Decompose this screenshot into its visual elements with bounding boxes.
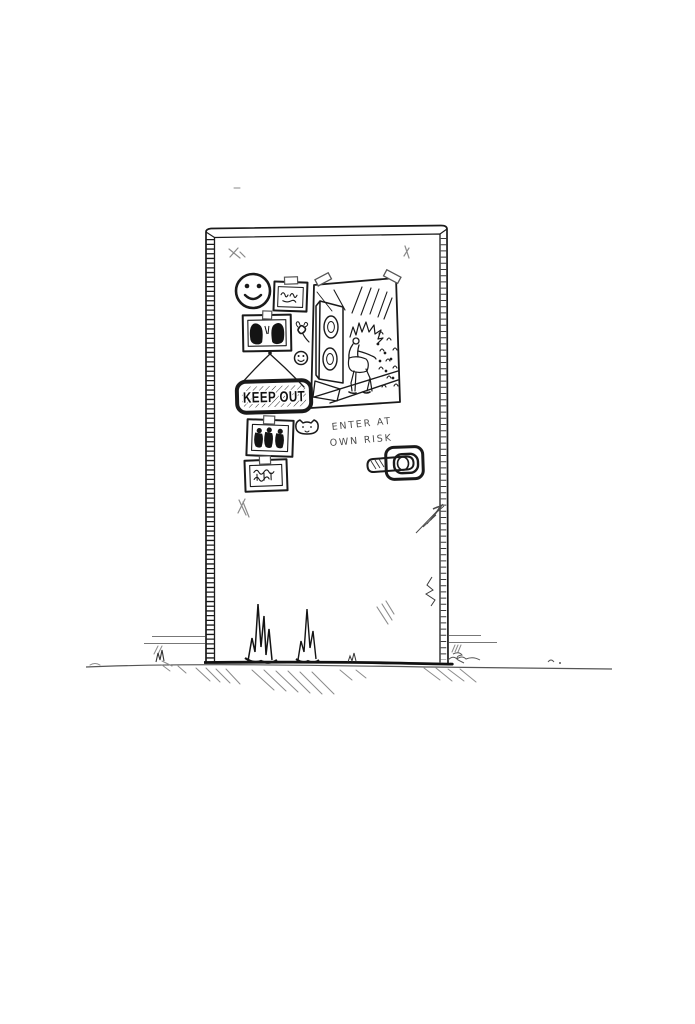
stage-block <box>313 381 340 401</box>
mini-smiley-sticker <box>295 352 308 365</box>
band-figures <box>254 427 285 449</box>
speaker-stack <box>313 301 343 401</box>
crouching-figure <box>348 322 383 393</box>
door-handle <box>367 446 423 479</box>
keep-out-sign-label: KEEP OUT <box>243 388 305 407</box>
warning-line-1: ENTER AT <box>331 416 392 433</box>
warning-line-2: OWN RISK <box>329 433 393 449</box>
taped-photo-scribbles <box>244 455 287 491</box>
lever-shading <box>371 459 384 469</box>
rock-concert-poster <box>311 270 401 408</box>
crack-mark <box>426 577 435 606</box>
scuff-hatch <box>377 601 394 624</box>
tape-top-right <box>384 270 401 284</box>
wing <box>350 322 383 344</box>
fly-sticker <box>296 322 309 342</box>
tape <box>263 416 274 424</box>
door-frame <box>206 226 448 665</box>
friend-hair-left <box>250 323 263 344</box>
keep-out-sign: KEEP OUT <box>237 351 312 413</box>
scuff-marks-top <box>229 246 409 258</box>
photo-scribble <box>281 293 297 303</box>
floor-hatching <box>162 665 476 694</box>
taped-photo-figures <box>273 276 307 312</box>
taped-photo-band <box>246 415 293 457</box>
sketch-canvas: KEEP OUT <box>0 0 695 1024</box>
tape <box>263 311 272 319</box>
taped-photo-two-friends <box>243 310 292 351</box>
photo-scribble <box>254 470 274 482</box>
warning-text: ENTER AT OWN RISK <box>329 416 393 449</box>
tape <box>284 277 297 284</box>
smiley-face-sticker <box>236 274 270 308</box>
shorts <box>348 357 368 373</box>
friend-hair-right <box>271 323 284 344</box>
baseboard-left <box>144 637 205 655</box>
scuff-x-mark <box>238 499 249 517</box>
weeds <box>156 604 356 663</box>
pebbles <box>448 657 480 660</box>
cat-face-sticker <box>296 420 318 434</box>
tape <box>259 456 270 464</box>
door-threshold <box>204 662 452 664</box>
door-sketch: KEEP OUT <box>0 0 695 1024</box>
